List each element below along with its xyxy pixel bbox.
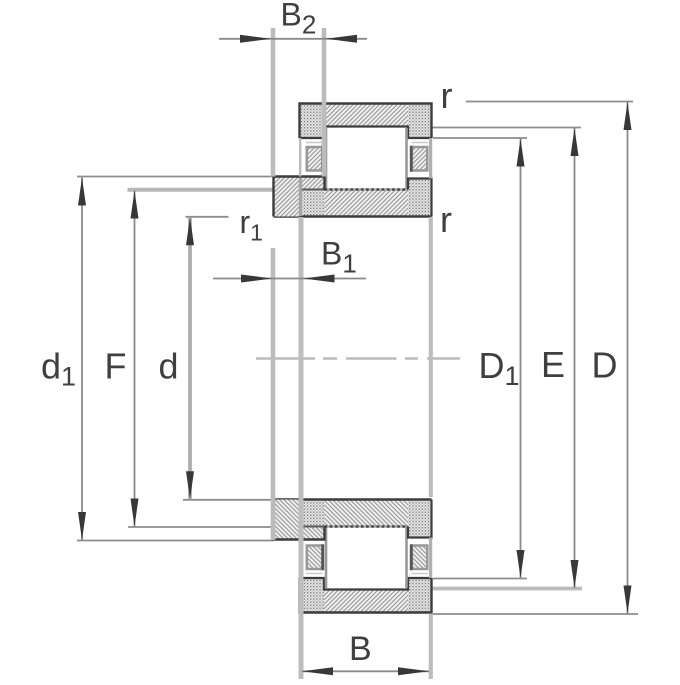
svg-text:d: d — [159, 346, 179, 387]
svg-text:E: E — [541, 344, 565, 385]
svg-text:r: r — [440, 199, 452, 240]
svg-text:r: r — [441, 75, 453, 116]
svg-text:D: D — [592, 344, 618, 385]
svg-text:F: F — [105, 346, 127, 387]
svg-text:B: B — [349, 630, 372, 668]
